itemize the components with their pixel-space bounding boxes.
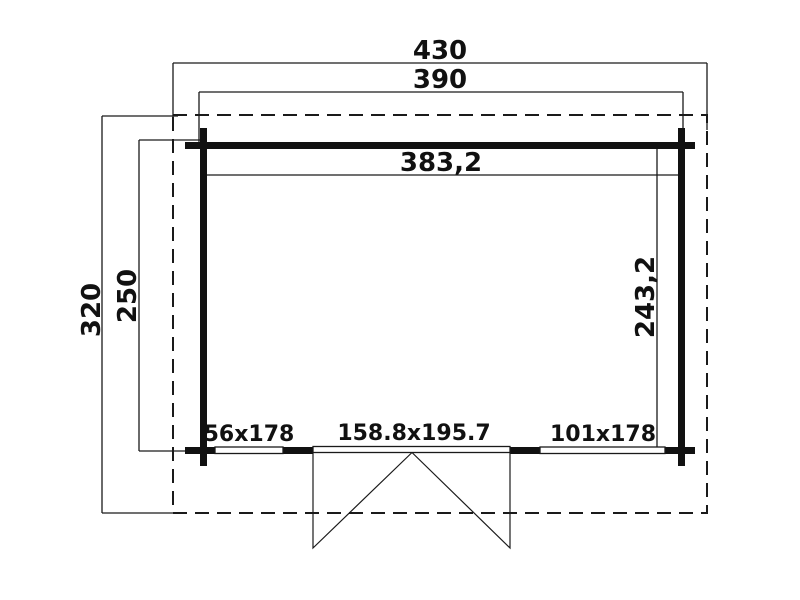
label-interior-width: 383,2 — [400, 148, 482, 178]
label-window-right: 101x178 — [550, 422, 656, 447]
label-window-left: 56x178 — [204, 422, 295, 447]
wall-bottom-segment — [283, 447, 313, 454]
label-wall-width: 390 — [413, 65, 467, 95]
window-left-symbol — [215, 447, 283, 454]
wall-bottom-segment — [185, 447, 215, 454]
label-overall-depth: 320 — [77, 283, 107, 337]
door-leaf-left — [313, 453, 412, 549]
wall-right — [678, 128, 685, 466]
floor-plan-drawing: 430 390 383,2 320 250 243,2 56x178 158.8… — [0, 0, 800, 600]
label-door: 158.8x195.7 — [337, 421, 490, 446]
label-overall-width: 430 — [413, 36, 467, 66]
floor-plan-canvas: 430 390 383,2 320 250 243,2 56x178 158.8… — [0, 0, 800, 600]
window-right-symbol — [540, 447, 665, 454]
label-interior-depth: 243,2 — [631, 256, 661, 338]
wall-bottom-segment — [665, 447, 695, 454]
wall-left — [200, 128, 207, 466]
wall-bottom-segment — [510, 447, 540, 454]
door-threshold-symbol — [313, 447, 510, 453]
door-leaf-right — [412, 453, 510, 549]
label-wall-depth: 250 — [113, 269, 143, 323]
